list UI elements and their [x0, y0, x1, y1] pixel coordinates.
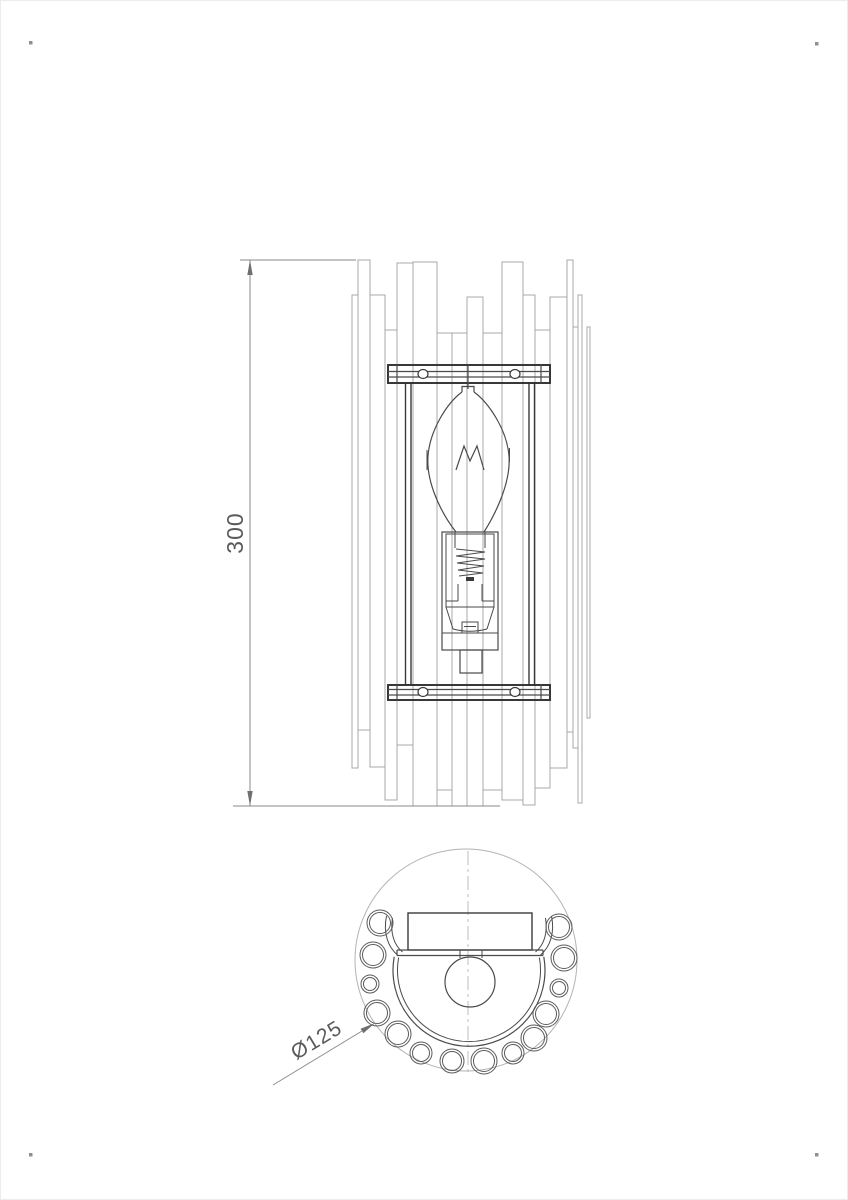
bottom-mounting-bracket: [388, 685, 550, 700]
crystal-rod-section: [385, 1021, 411, 1047]
crystal-rod-section-inner: [474, 1051, 495, 1072]
crystal-rod-section-inner: [443, 1052, 462, 1071]
crystal-rod-section-inner: [388, 1024, 409, 1045]
wall-mount-plate: [397, 913, 543, 958]
bracket-screw-hole: [510, 688, 520, 697]
crystal-rod-section-inner: [413, 1045, 430, 1062]
corner-mark: [815, 1153, 819, 1157]
crystal-slat: [567, 260, 573, 732]
corner-mark: [29, 41, 33, 45]
top-mounting-bracket: [388, 365, 550, 389]
crystal-slat: [535, 330, 550, 788]
crystal-rod-section-inner: [554, 948, 575, 969]
crystal-rod-section-inner: [505, 1045, 522, 1062]
crystal-rod-section-inner: [524, 1028, 545, 1049]
dimension-arrow-down: [247, 791, 252, 806]
candle-bulb: [427, 387, 510, 533]
height-dimension: 300: [222, 260, 500, 806]
crystal-slat: [358, 260, 370, 730]
crystal-slat: [483, 333, 502, 790]
crystal-slat: [502, 262, 523, 800]
crystal-slat: [437, 333, 452, 790]
crystal-rod-section-inner: [363, 945, 384, 966]
drawing-page: 300: [0, 0, 848, 1200]
crystal-slats: [352, 260, 590, 806]
diameter-dimension-label: Ø125: [287, 1016, 346, 1064]
crystal-rod-section: [367, 910, 393, 936]
crystal-rod-section-inner: [370, 913, 391, 934]
crystal-rod-section: [440, 1049, 464, 1073]
socket-thread: [456, 549, 485, 576]
drawing-canvas: 300: [0, 0, 848, 1200]
bracket-screw-hole: [418, 688, 428, 697]
crystal-slat: [550, 297, 567, 768]
socket-hole-circle: [445, 957, 495, 1007]
crystal-rod-section-inner: [553, 982, 566, 995]
bracket-screw-hole: [418, 370, 428, 379]
crystal-rod-section-inner: [367, 1003, 388, 1024]
bracket-screw-hole: [510, 370, 520, 379]
crystal-slat: [352, 295, 358, 768]
lamp-socket: [442, 532, 498, 673]
bulb-filament: [456, 446, 484, 470]
crystal-rod-section: [410, 1042, 432, 1064]
shade-end-clips: [385, 916, 552, 955]
crystal-rod-section: [471, 1048, 497, 1074]
crystal-rod-section-inner: [536, 1004, 557, 1025]
crystal-slat: [587, 327, 590, 718]
height-dimension-label: 300: [222, 512, 248, 553]
crystal-slat: [578, 295, 582, 803]
crystal-rod-section: [546, 914, 572, 940]
crystal-rod-section: [551, 945, 577, 971]
diameter-dimension: Ø125: [273, 1016, 375, 1085]
corner-mark: [815, 42, 819, 46]
diameter-leader-arrow: [361, 1023, 375, 1033]
socket-terminal: [460, 650, 482, 673]
crystal-slat: [385, 330, 397, 800]
corner-marks: [29, 41, 819, 1157]
bracket-screw-holes: [418, 370, 520, 697]
crystal-slat: [370, 295, 385, 767]
crystal-rod-section-inner: [364, 978, 377, 991]
dimension-arrow-up: [247, 260, 252, 275]
crystal-rod-section: [364, 1000, 390, 1026]
corner-mark: [29, 1153, 33, 1157]
crystal-rod-section: [533, 1001, 559, 1027]
front-view-drawing: 300: [222, 260, 590, 806]
crystal-rod-section: [360, 942, 386, 968]
crystal-slat: [573, 327, 578, 748]
top-view-drawing: Ø125: [273, 849, 577, 1085]
crystal-rod-section-inner: [549, 917, 570, 938]
socket-contact: [466, 577, 474, 581]
crystal-slat: [413, 262, 437, 806]
